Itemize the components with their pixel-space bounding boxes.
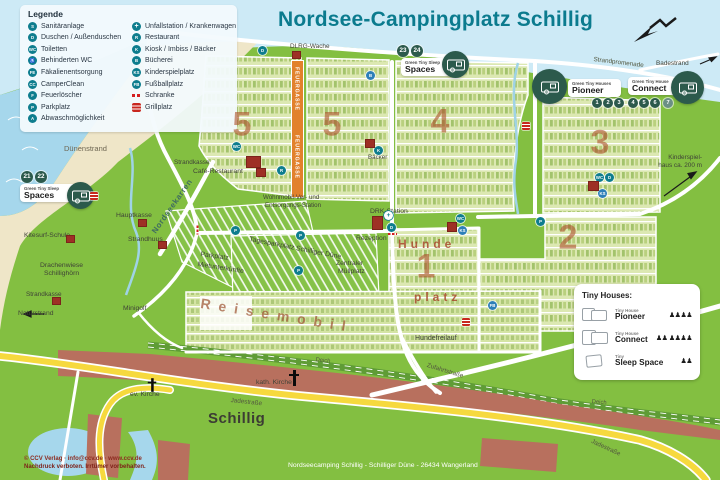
house-5-marker: 5: [639, 98, 649, 108]
label-naturstrand: Naturstrand: [18, 310, 54, 318]
legend-item-toiletten: WCToiletten: [28, 44, 67, 54]
medical-cross-icon: +: [132, 22, 141, 31]
barrier-marker: [388, 233, 397, 235]
legend-item-fussballplatz: FBFußballplatz: [132, 79, 183, 89]
kath-kirche-cross-icon: [288, 370, 300, 386]
strandkasse-building: [52, 297, 61, 305]
baecker-building: [365, 139, 375, 148]
legend-item-buecherei: BBücherei: [132, 56, 173, 66]
house-4-marker: 4: [628, 98, 638, 108]
tiny-sleep-space-icon: [442, 51, 469, 78]
label-hundeplatz-2: platz: [414, 291, 461, 305]
label-kath-kirche: kath. Kirche: [256, 379, 292, 387]
legend-item-feuerloescher: FFeuerlöscher: [28, 91, 82, 101]
cafe-building: [246, 156, 261, 168]
legend-heading: Legende: [28, 9, 63, 19]
grill-poi: [90, 192, 98, 200]
soccer-icon: FB: [132, 80, 141, 89]
label-kitesurf-schule: Kitesurf-Schule: [24, 232, 70, 240]
cafe-building: [256, 168, 266, 177]
parking-poi: P: [536, 217, 545, 226]
legend-item-unfallstation: +Unfallstation / Krankenwagen: [132, 21, 236, 31]
tiny-houses-panel: Tiny Houses: Tiny HousePioneer ♟♟♟♟ Tiny…: [574, 284, 700, 380]
pitch-21-marker: 21: [21, 171, 33, 183]
map-title: Nordsee-Campingplatz Schillig: [278, 8, 593, 32]
pitch-22-marker: 22: [35, 171, 47, 183]
tiny-houses-heading: Tiny Houses:: [582, 291, 692, 300]
parking-poi: P: [294, 266, 303, 275]
wc-icon: WC: [28, 45, 37, 54]
service-building: [588, 181, 599, 191]
tiny-house-pioneer-icon: [532, 69, 567, 104]
camperclean-icon: CC: [28, 80, 37, 89]
campground-map: Nordsee-Campingplatz Schillig Legende SS…: [0, 0, 720, 480]
tiny-house-connect-icon: [582, 329, 612, 346]
site-address: Nordseecamping Schillig - Schilliger Dün…: [288, 462, 478, 469]
zone-5-left: 5: [233, 106, 252, 145]
label-dlrg-wache: DLRG-Wache: [290, 43, 330, 50]
label-drachenwiese-1: Drachenwiese: [40, 262, 83, 270]
wheelchair-icon: ♿: [28, 56, 37, 65]
pitch-24-marker: 24: [411, 45, 423, 57]
kiosk-icon: K: [132, 45, 141, 54]
capacity-persons: ♟♟: [680, 357, 692, 365]
zone-1: 1: [417, 248, 436, 287]
ev-kirche-cross-icon: [147, 378, 157, 392]
legend-item-kiosk: KKiosk / Imbiss / Bäcker: [132, 44, 216, 54]
hauptkasse-building: [138, 219, 147, 227]
strandhuus-building: [158, 241, 167, 249]
library-poi: B: [366, 71, 375, 80]
label-muellplatz-1: Zentraler: [336, 260, 363, 268]
zone-2: 2: [559, 219, 578, 258]
pitch-23-marker: 23: [397, 45, 409, 57]
zone-4: 4: [431, 103, 450, 142]
wc-poi: WC: [456, 214, 465, 223]
copyright-line-2: Nachdruck verboten. Irrtümer vorbehalten…: [24, 464, 146, 470]
label-kinderspielhaus-2: haus ca. 200 m: [656, 162, 702, 169]
first-aid-poi: +: [384, 211, 393, 220]
label-rezeption: Rezeption: [356, 235, 387, 243]
label-muellplatz-2: Müllplatz: [338, 268, 365, 276]
capacity-persons: ♟♟♟♟: [669, 311, 692, 319]
shower-poi: D: [605, 173, 614, 182]
badge-spaces-left: 21 22 Green Tiny Sleep Spaces: [20, 170, 120, 215]
zone-5-right: 5: [323, 106, 342, 145]
label-cafe-restaurant: Café-Restaurant: [193, 168, 243, 176]
label-badestrand: Badestrand: [656, 60, 689, 67]
house-3-marker: 3: [614, 98, 624, 108]
sanitary-icon: S: [28, 22, 37, 31]
label-kinderspielhaus-1: Kinderspiel-: [656, 154, 702, 161]
copyright-line-1: © CCV Verlag · info@ccv.de · www.ccv.de: [24, 456, 142, 462]
disposal-icon: FE: [28, 68, 37, 77]
house-7-marker: 7: [663, 98, 673, 108]
capacity-persons: ♟♟ ♟♟♟♟: [656, 334, 692, 342]
label-ev-kirche: ev. Kirche: [130, 391, 160, 399]
label-minigolf: Minigolf: [123, 305, 146, 313]
tiny-house-pioneer-icon: [582, 306, 612, 323]
reception-building: [372, 216, 383, 230]
label-drachenwiese-2: Schillighörn: [44, 270, 79, 278]
legend-item-duschen: DDuschen / Außenduschen: [28, 33, 121, 43]
legend-item-parkplatz: PParkplatz: [28, 102, 70, 112]
legend-item-restaurant: RRestaurant: [132, 33, 179, 43]
legend-item-sanitaeranlage: SSanitäranlage: [28, 21, 84, 31]
legend-item-abwasch: AAbwaschmöglichkeit: [28, 114, 104, 124]
house-2-marker: 2: [603, 98, 613, 108]
label-hundefreilauf: Hundefreilauf: [415, 335, 457, 343]
label-duenenstrand: Dünenstrand: [64, 145, 107, 154]
legend-item-schranke: Schranke: [132, 91, 175, 101]
playground-poi: KS: [598, 189, 607, 198]
legend-item-grillplatz: Grillplatz: [132, 102, 172, 112]
label-wohnmobil-1: Wohnmobil-Ver- und: [263, 194, 319, 201]
tiny-house-row-sleep-space: TinySleep Space ♟♟: [582, 352, 692, 369]
legend-item-camperclean: CCCamperClean: [28, 79, 84, 89]
legend-item-behinderten-wc: ♿Behinderten WC: [28, 56, 92, 66]
wc-poi: WC: [232, 142, 241, 151]
house-6-marker: 6: [650, 98, 660, 108]
parking-poi: P: [231, 226, 240, 235]
label-schillig: Schillig: [208, 410, 265, 427]
legend-item-kinderspielplatz: KSKinderspielplatz: [132, 67, 194, 77]
service-building: [447, 222, 457, 232]
dlrg-building: [292, 51, 301, 59]
playground-poi: KS: [458, 226, 467, 235]
feuergasse-lane: FEUERGASSE FEUERGASSE: [291, 60, 304, 198]
house-1-marker: 1: [592, 98, 602, 108]
playground-icon: KS: [132, 68, 141, 77]
shower-poi: D: [258, 46, 267, 55]
restaurant-icon: R: [132, 33, 141, 42]
grill-icon: [132, 103, 141, 112]
tiny-house-row-pioneer: Tiny HousePioneer ♟♟♟♟: [582, 306, 692, 323]
soccer-poi: FB: [488, 301, 497, 310]
legend-item-faekalienentsorgung: FEFäkalienentsorgung: [28, 67, 103, 77]
parking-icon: P: [28, 103, 37, 112]
dishwash-icon: A: [28, 114, 37, 123]
restaurant-poi: R: [277, 166, 286, 175]
label-deich-2: Deich: [591, 399, 606, 407]
fire-ext-icon: F: [28, 91, 37, 100]
zone-3: 3: [591, 124, 610, 163]
library-icon: B: [132, 56, 141, 65]
grill-poi: [462, 318, 470, 326]
shower-poi: D: [387, 223, 396, 232]
parking-poi: P: [296, 231, 305, 240]
barrier-marker: [197, 226, 199, 235]
label-strandkasse-top: Strandkasse: [174, 159, 210, 166]
barrier-icon: [132, 94, 141, 96]
grill-poi: [522, 122, 530, 130]
shower-icon: D: [28, 33, 37, 42]
badge-spaces-top: 23 24 Green Tiny Sleep Spaces: [396, 40, 496, 85]
tiny-house-row-connect: Tiny HouseConnect ♟♟ ♟♟♟♟: [582, 329, 692, 346]
kitesurf-building: [66, 235, 75, 243]
label-wohnmobil-2: Entsorgungs-Station: [265, 202, 321, 209]
label-hundeplatz-1: Hunde: [398, 238, 455, 252]
compass-north-arrow: [632, 16, 680, 46]
kiosk-poi: K: [374, 146, 383, 155]
legend-panel: Legende SSanitäranlage DDuschen / Außend…: [20, 5, 237, 132]
tiny-house-connect-icon: [671, 71, 704, 104]
label-baecker: Bäcker: [368, 154, 387, 161]
tiny-sleep-space-icon: [582, 352, 612, 369]
